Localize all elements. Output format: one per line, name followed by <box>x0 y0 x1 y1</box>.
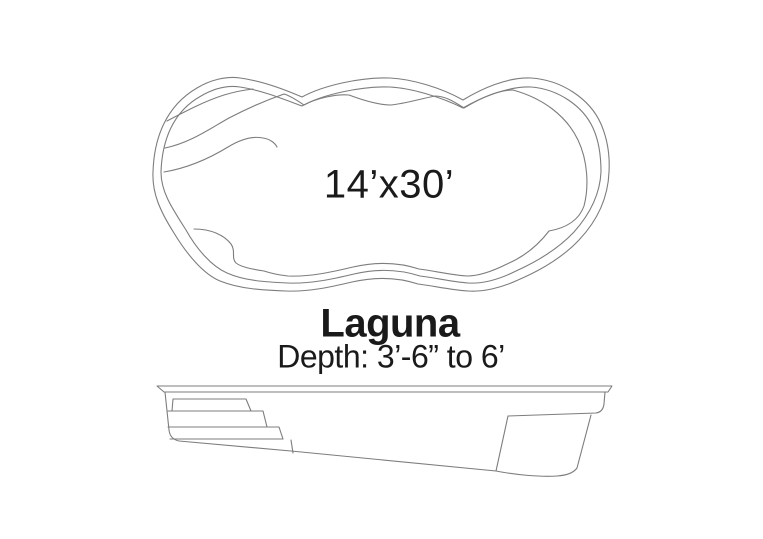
plan-entry-steps-contours <box>164 89 284 172</box>
profile-wall-and-floor <box>165 392 591 476</box>
profile-coping-band <box>157 386 612 392</box>
profile-bench-front-edge <box>496 416 508 471</box>
profile-entry-steps <box>168 399 283 439</box>
pool-depth-label: Depth: 3’-6” to 6’ <box>277 339 505 376</box>
pool-spec-sheet: 14’x30’ Laguna Depth: 3’-6” to 6’ <box>0 0 763 539</box>
pool-line-drawing <box>0 0 763 539</box>
pool-side-view <box>157 386 612 476</box>
pool-size-label: 14’x30’ <box>324 163 454 208</box>
profile-bench-seat <box>508 392 605 416</box>
